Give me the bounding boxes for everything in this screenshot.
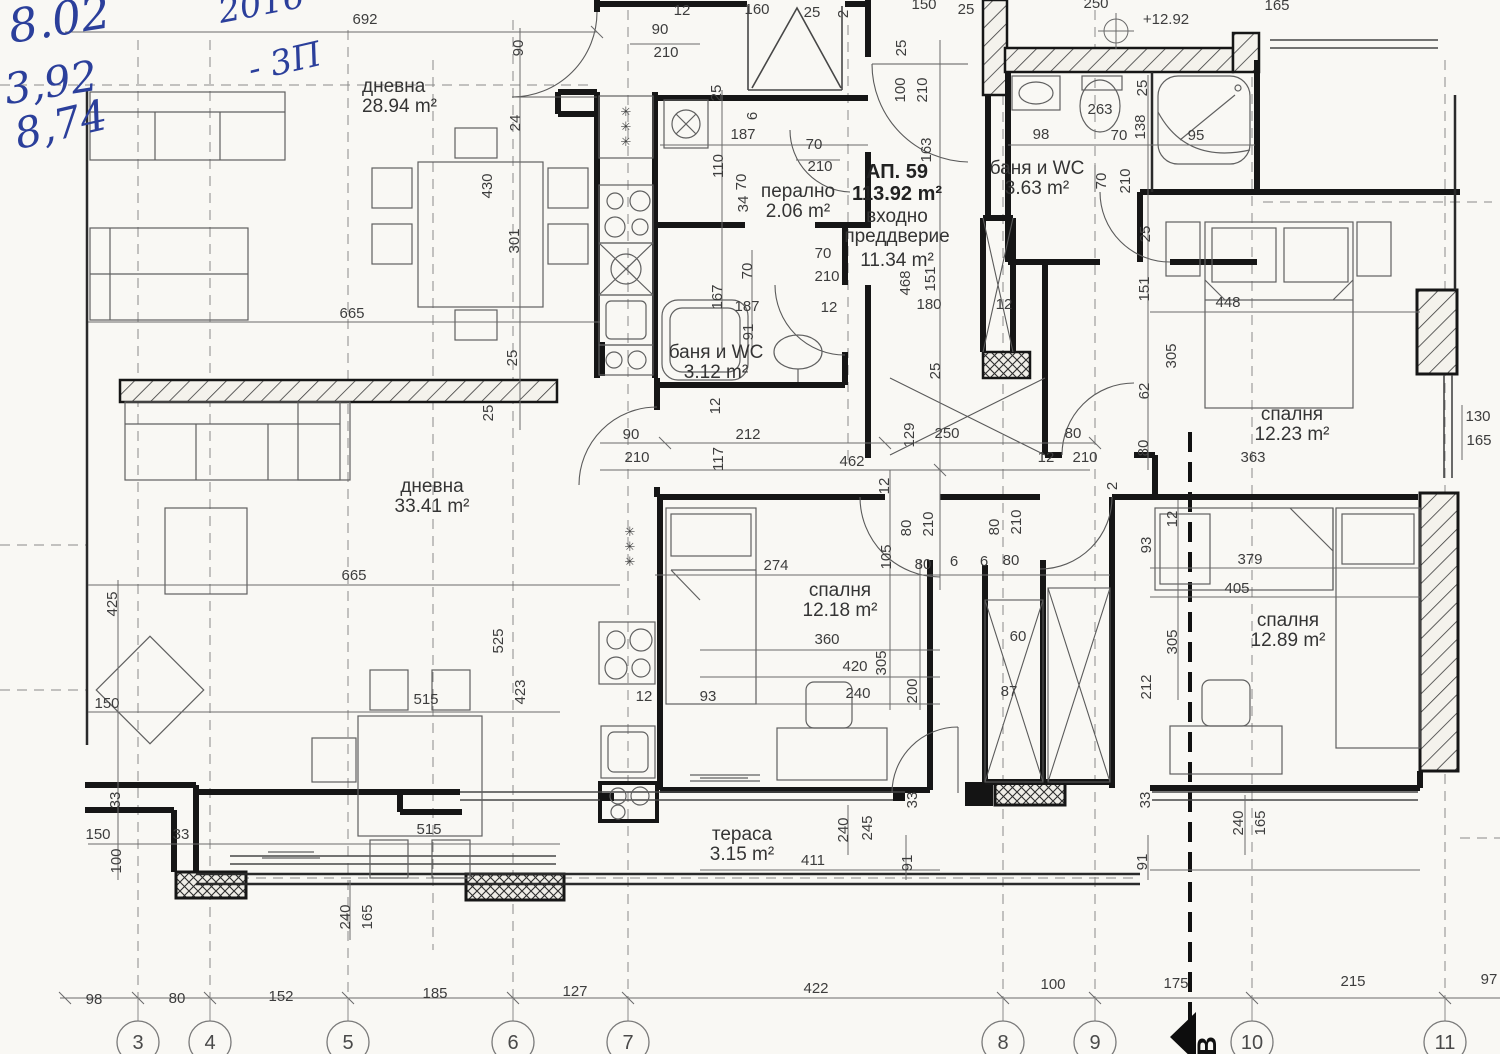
snowflake-symbol: ✳ — [625, 540, 636, 555]
dimension-label: 423 — [512, 679, 529, 704]
dimension-label: 165 — [1264, 0, 1289, 14]
dimension-label: 160 — [744, 1, 769, 18]
snowflake-symbol: ✳ — [625, 525, 636, 540]
room-area-label: 12.23 m² — [1255, 424, 1330, 445]
dimension-label: 25 — [1134, 80, 1151, 97]
dimension-label: 6 — [980, 553, 988, 570]
dimension-label: 180 — [916, 296, 941, 313]
dimension-label: 151 — [1136, 276, 1153, 301]
dimension-label: 129 — [901, 422, 918, 447]
dimension-label: 263 — [1087, 101, 1112, 118]
dimension-label: 167 — [709, 284, 726, 309]
room-label: спалня — [1261, 404, 1323, 425]
axis-number: 11 — [1435, 1032, 1456, 1054]
dimension-label: 6 — [950, 553, 958, 570]
dimension-label: 33 — [904, 792, 921, 809]
dimension-label: 90 — [652, 21, 669, 38]
dimension-label: 12 — [674, 2, 691, 19]
room-label: баня и WC — [990, 158, 1085, 179]
dimension-label: 245 — [859, 815, 876, 840]
axis-number: 8 — [997, 1032, 1008, 1054]
room-area-label: 2.06 m² — [766, 201, 830, 222]
room-area-label: 3.12 m² — [684, 362, 748, 383]
dimension-label: 25 — [893, 40, 910, 57]
snowflake-symbol: ✳ — [621, 135, 632, 150]
dimension-label: 117 — [710, 447, 727, 471]
dimension-label: 98 — [86, 991, 103, 1008]
dimension-label: 12 — [636, 688, 653, 705]
dimension-label: 12 — [876, 478, 893, 495]
dimension-label: 210 — [920, 511, 937, 536]
dimension-label: 24 — [507, 115, 524, 132]
room-label: спалня — [809, 580, 871, 601]
apartment-area-label: 113.92 m² — [852, 183, 942, 205]
dimension-label: 2 — [835, 10, 852, 18]
dimension-label: 93 — [1138, 537, 1155, 554]
dimension-label: 665 — [341, 567, 366, 584]
dimension-label: 2 — [1104, 482, 1121, 490]
dimension-label: 692 — [352, 11, 377, 28]
axis-number: 5 — [342, 1032, 353, 1054]
room-label: входно — [866, 206, 928, 227]
dimension-label: 25 — [480, 405, 497, 422]
dimension-label: 105 — [878, 544, 895, 569]
room-label: спалня — [1257, 610, 1319, 631]
dimension-label: 33 — [1137, 792, 1154, 809]
dimension-label: 150 — [911, 0, 936, 13]
dimension-label: 250 — [1083, 0, 1108, 12]
dimension-label: 360 — [814, 631, 839, 648]
dimension-label: 240 — [835, 817, 852, 842]
dimension-label: 33 — [107, 792, 124, 809]
room-area-label: преддверие — [844, 226, 949, 247]
dimension-label: 363 — [1240, 449, 1265, 466]
dimension-label: 80 — [915, 556, 932, 573]
dimension-label: 80 — [986, 519, 1003, 536]
dimension-label: 62 — [1136, 383, 1153, 400]
dimension-label: 70 — [1111, 127, 1128, 144]
dimension-label: 110 — [710, 154, 727, 178]
dimension-label: 100 — [108, 848, 125, 873]
room-area-label: 3.63 m² — [1005, 178, 1069, 199]
dimension-label: 210 — [814, 268, 839, 285]
dimension-label: 12 — [1164, 511, 1181, 528]
dimension-label: 515 — [416, 821, 441, 838]
dimension-label: 25 — [1137, 226, 1154, 243]
dimension-label: 240 — [1230, 810, 1247, 835]
dimension-label: 95 — [1188, 127, 1205, 144]
dimension-label: 515 — [413, 691, 438, 708]
dimension-label: 210 — [624, 449, 649, 466]
dimension-label: 91 — [1134, 854, 1151, 871]
dimension-label: 70 — [733, 174, 750, 191]
dimension-label: 152 — [268, 988, 293, 1005]
dimension-label: 98 — [1033, 126, 1050, 143]
dimension-label: 379 — [1237, 551, 1262, 568]
room-area-label: 33.41 m² — [395, 496, 470, 517]
dimension-label: 210 — [1008, 509, 1025, 534]
dimension-label: 665 — [339, 305, 364, 322]
axis-number: 4 — [204, 1032, 215, 1054]
dimension-label: 93 — [700, 688, 717, 705]
dimension-label: 150 — [85, 826, 110, 843]
dimension-label: +12.92 — [1143, 11, 1189, 28]
dimension-label: 212 — [735, 426, 760, 443]
dimension-label: 70 — [815, 245, 832, 262]
dimension-label: 212 — [1138, 674, 1155, 699]
dimension-label: 468 — [897, 270, 914, 295]
dimension-label: 175 — [1163, 975, 1188, 992]
snowflake-symbol: ✳ — [625, 555, 636, 570]
dimension-label: 210 — [1117, 168, 1134, 193]
dimension-label: 25 — [708, 85, 725, 102]
axis-number: 6 — [507, 1032, 518, 1054]
floor-plan-scan: 692129021016025215025250+12.921652510021… — [0, 0, 1500, 1054]
room-label: перално — [761, 181, 835, 202]
dimension-label: 210 — [653, 44, 678, 61]
dimension-label: 33 — [173, 826, 190, 843]
dimension-label: 411 — [801, 852, 825, 869]
dimension-label: 97 — [1481, 971, 1498, 988]
dimension-label: 60 — [1010, 628, 1027, 645]
dimension-label: 301 — [506, 228, 523, 253]
dimension-label: 80 — [898, 520, 915, 537]
dimension-label: 130 — [1465, 408, 1490, 425]
dimension-label: 70 — [1093, 173, 1110, 190]
dimension-label: 240 — [845, 685, 870, 702]
dimension-label: 448 — [1215, 294, 1240, 311]
section-marker-letter: В — [1192, 1036, 1222, 1054]
dimension-label: 215 — [1340, 973, 1365, 990]
dimension-label: 274 — [763, 557, 788, 574]
dimension-label: 138 — [1132, 114, 1149, 139]
room-area-label: 12.89 m² — [1251, 630, 1326, 651]
dimension-label: 87 — [1001, 683, 1018, 700]
dimension-label: 250 — [934, 425, 959, 442]
dimension-label: 91 — [899, 855, 916, 872]
dimension-label: 70 — [739, 263, 756, 280]
dimension-label: 100 — [1040, 976, 1065, 993]
axis-number: 3 — [132, 1032, 143, 1054]
dimension-label: 422 — [803, 980, 828, 997]
dimension-label: 163 — [918, 137, 935, 162]
dimension-label: 12 — [821, 299, 838, 316]
dimension-label: 210 — [1072, 449, 1097, 466]
dimension-label: 90 — [510, 40, 527, 57]
dimension-label: 525 — [490, 628, 507, 653]
dimension-label: 420 — [842, 658, 867, 675]
dimension-label: 187 — [730, 126, 755, 143]
dimension-label: 240 — [337, 904, 354, 929]
dimension-label: 185 — [422, 985, 447, 1002]
dimension-label: 210 — [807, 158, 832, 175]
dimension-label: 91 — [740, 324, 757, 341]
room-label: тераса — [712, 824, 773, 845]
dimension-label: 305 — [873, 650, 890, 675]
dimension-label: 100 — [892, 77, 909, 102]
snowflake-symbol: ✳ — [621, 120, 632, 135]
dimension-label: 210 — [914, 77, 931, 102]
apartment-number-label: АП. 59 — [866, 161, 928, 183]
dimension-label: 127 — [562, 983, 587, 1000]
room-label: дневна — [362, 76, 426, 97]
dimension-label: 12 — [707, 398, 724, 415]
dimension-label: 25 — [804, 4, 821, 21]
dimension-label: 405 — [1224, 580, 1249, 597]
axis-number: 7 — [622, 1032, 633, 1054]
room-label: баня и WC — [669, 342, 764, 363]
dimension-label: 305 — [1164, 629, 1181, 654]
dimension-label: 34 — [735, 196, 752, 213]
dimension-label: 165 — [1466, 432, 1491, 449]
dimension-label: 165 — [1252, 810, 1269, 835]
dimension-label: 12 — [996, 296, 1013, 313]
dimension-label: 25 — [927, 363, 944, 380]
room-area-label: 3.15 m² — [710, 844, 774, 865]
room-label: дневна — [400, 476, 464, 497]
dimension-label: 90 — [623, 426, 640, 443]
room-label: 11.34 m² — [860, 250, 934, 271]
dimension-label: 80 — [169, 990, 186, 1007]
dimension-label: 165 — [359, 904, 376, 929]
dimension-label: 425 — [104, 591, 121, 616]
snowflake-symbol: ✳ — [621, 105, 632, 120]
dimension-label: 70 — [806, 136, 823, 153]
dimension-label: 200 — [904, 678, 921, 703]
dimension-label: 80 — [1135, 440, 1152, 457]
dimension-label: 12 — [1038, 449, 1055, 466]
dimension-label: 187 — [734, 298, 759, 315]
dimension-label: 6 — [744, 112, 761, 120]
floor-plan-drawing: 692129021016025215025250+12.921652510021… — [0, 0, 1500, 1054]
dimension-label: 305 — [1163, 343, 1180, 368]
room-area-label: 28.94 m² — [362, 96, 437, 117]
axis-number: 10 — [1241, 1032, 1263, 1054]
dimension-label: 462 — [839, 453, 864, 470]
dimension-label: 25 — [958, 1, 975, 18]
dimension-label: 25 — [504, 350, 521, 367]
axis-number: 9 — [1089, 1032, 1100, 1054]
dimension-label: 430 — [479, 173, 496, 198]
dimension-label: 150 — [94, 695, 119, 712]
room-area-label: 12.18 m² — [803, 600, 878, 621]
dimension-label: 80 — [1065, 425, 1082, 442]
dimension-label: 80 — [1003, 552, 1020, 569]
